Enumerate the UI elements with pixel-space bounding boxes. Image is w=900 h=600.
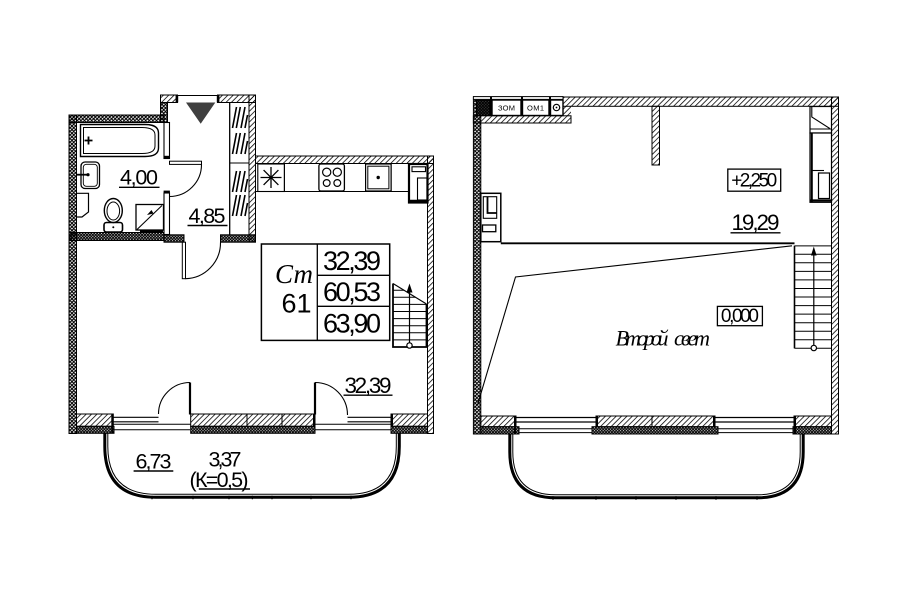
svg-text:32,39: 32,39 — [323, 246, 381, 276]
svg-text:свет: свет — [674, 326, 710, 351]
svg-text:4,00: 4,00 — [120, 166, 158, 190]
svg-text:+2,250: +2,250 — [731, 171, 777, 192]
svg-text:Ст: Ст — [275, 259, 313, 289]
svg-text:6,73: 6,73 — [136, 449, 172, 473]
svg-text:Второй: Второй — [616, 326, 669, 351]
svg-text:(К=0,5): (К=0,5) — [190, 468, 249, 492]
svg-text:32,39: 32,39 — [345, 373, 392, 398]
svg-text:60,53: 60,53 — [323, 277, 381, 307]
svg-text:61: 61 — [281, 289, 311, 319]
svg-text:19,29: 19,29 — [732, 210, 780, 235]
svg-text:ОМ1: ОМ1 — [527, 104, 544, 113]
svg-text:63,90: 63,90 — [323, 308, 381, 338]
svg-text:4,85: 4,85 — [189, 204, 226, 228]
svg-text:ЗОМ: ЗОМ — [498, 104, 515, 113]
svg-text:0,000: 0,000 — [721, 306, 759, 327]
